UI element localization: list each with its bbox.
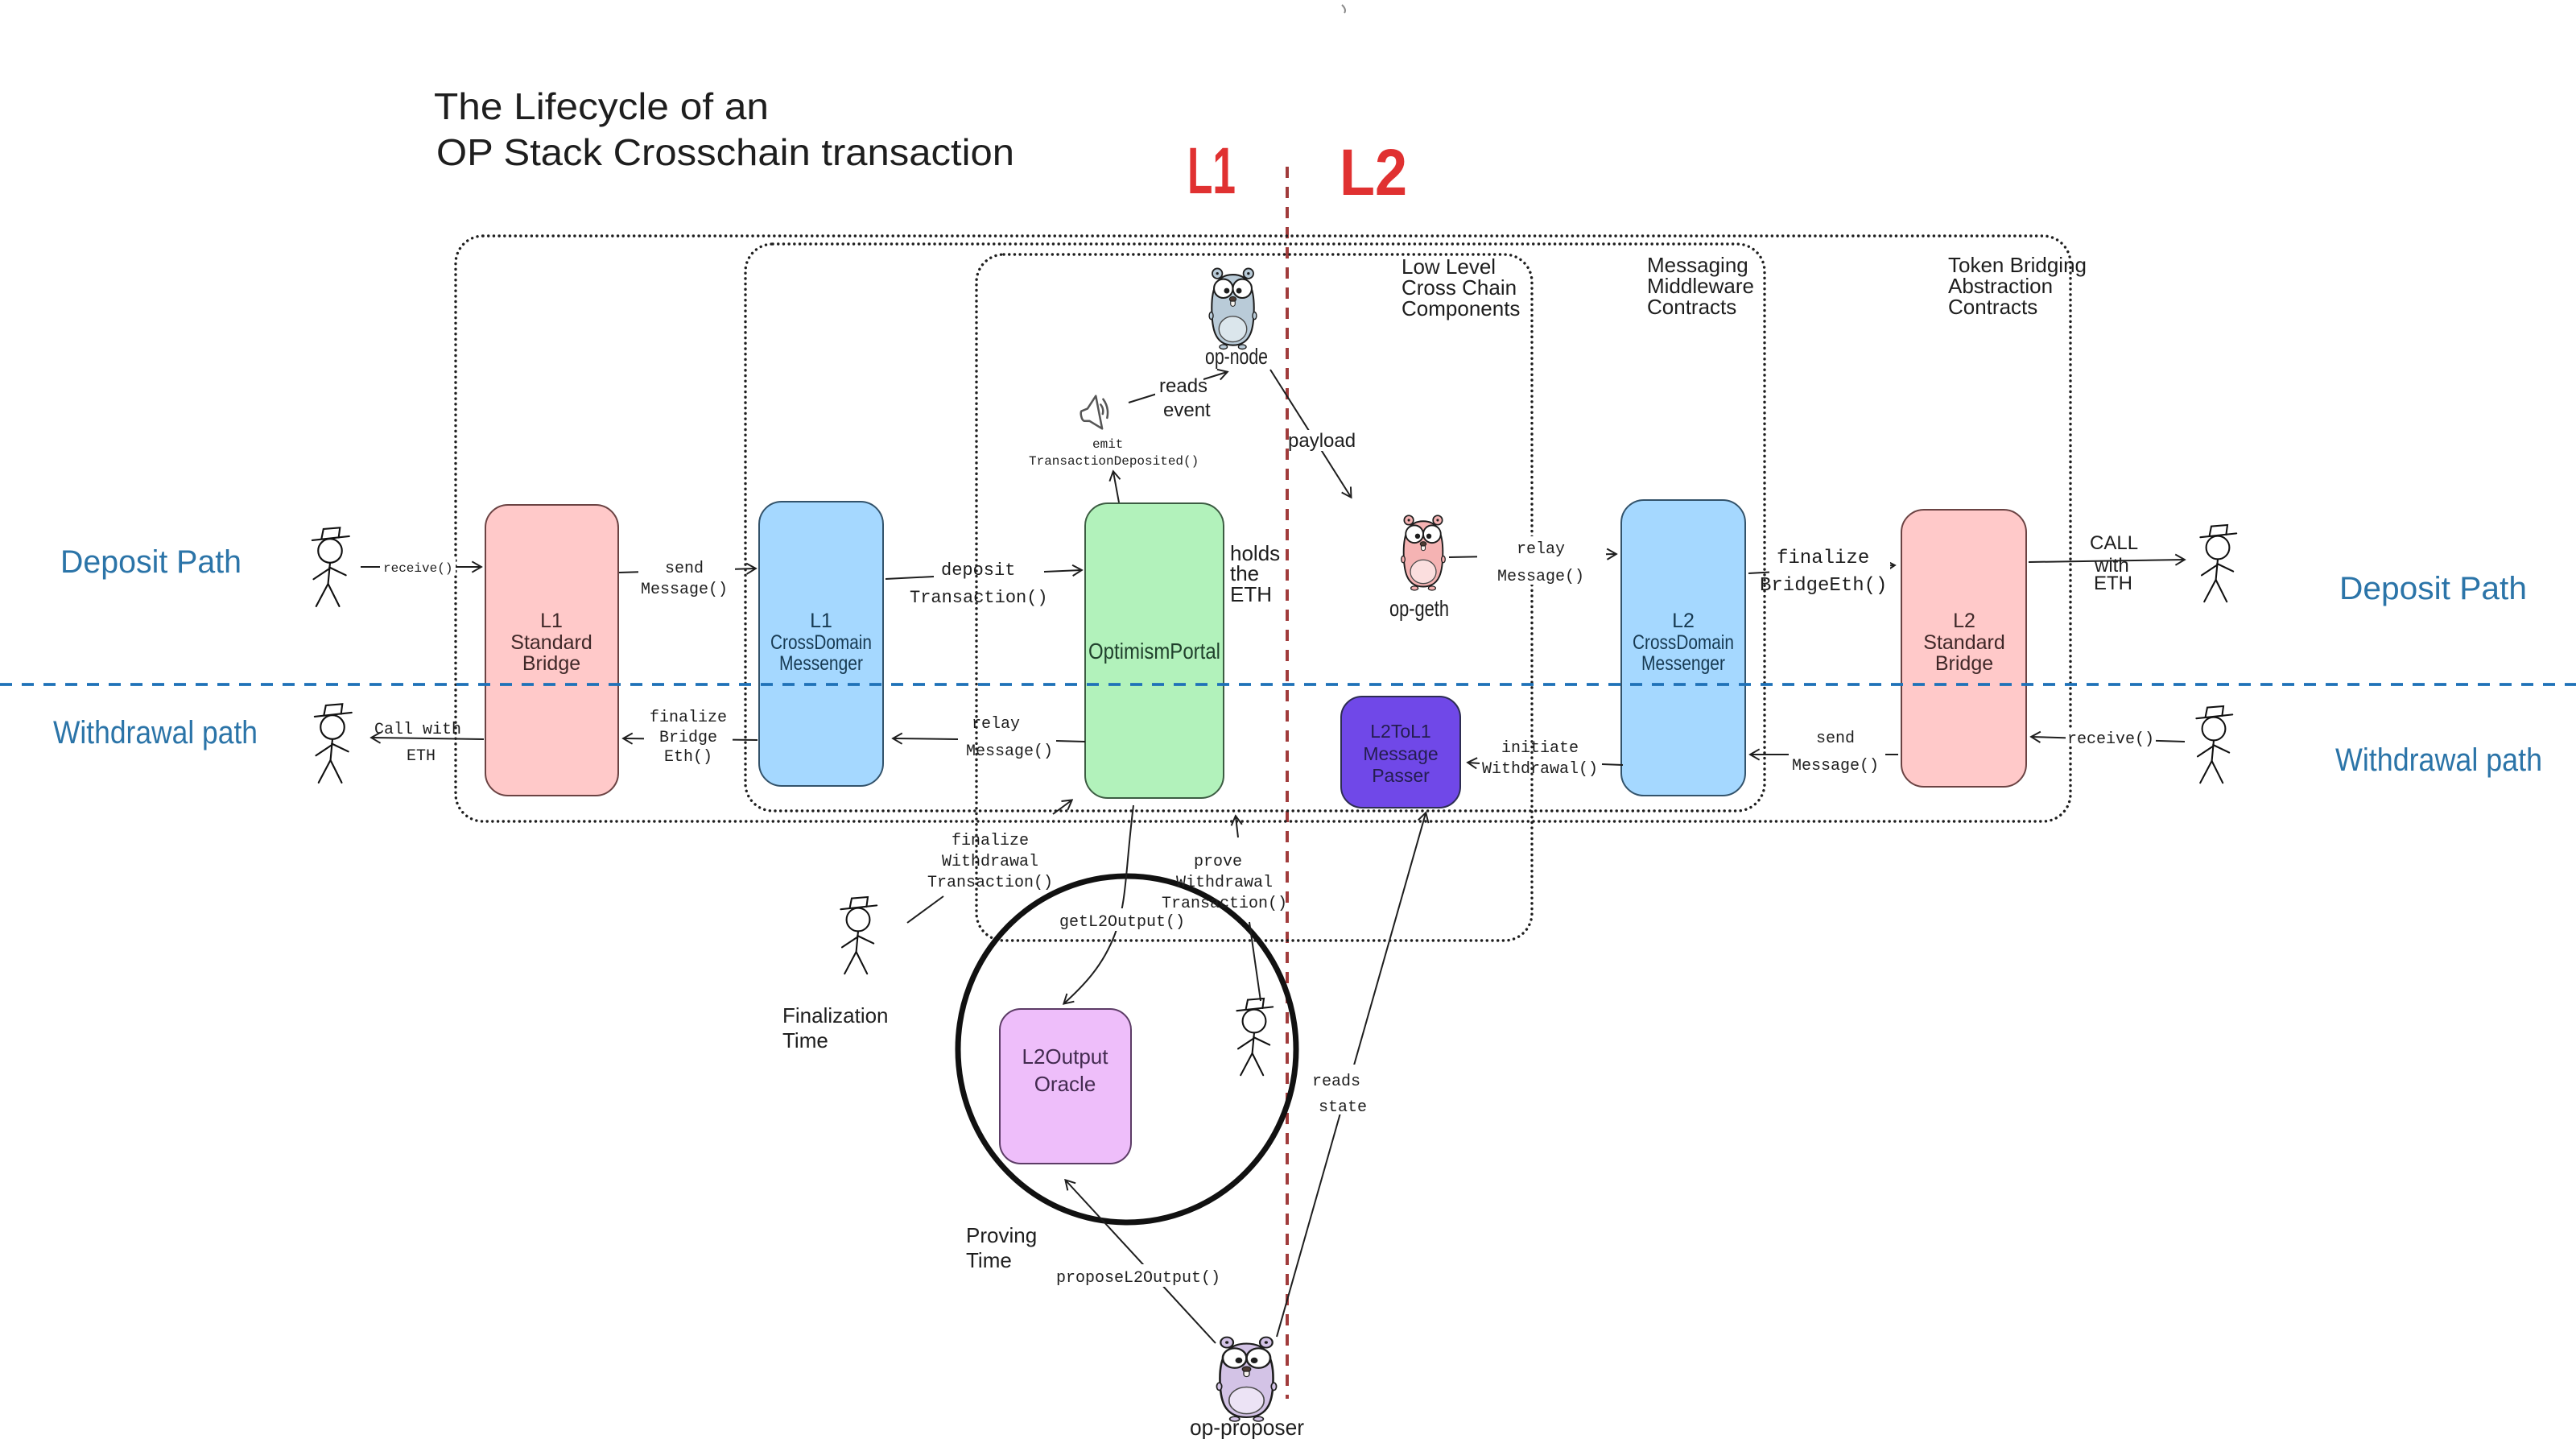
svg-text:Withdrawal: Withdrawal — [1176, 874, 1273, 892]
svg-text:Time: Time — [782, 1028, 828, 1052]
svg-text:CrossDomain: CrossDomain — [1633, 631, 1734, 654]
svg-text:Oracle: Oracle — [1034, 1072, 1096, 1096]
svg-text:ETH: ETH — [1230, 582, 1272, 606]
svg-text:Time: Time — [966, 1248, 1012, 1272]
svg-text:ETH: ETH — [407, 747, 436, 766]
svg-text:L2ToL1: L2ToL1 — [1370, 721, 1430, 742]
svg-text:Contracts: Contracts — [1647, 295, 1736, 319]
svg-text:L1: L1 — [540, 610, 563, 632]
svg-text:CrossDomain: CrossDomain — [770, 631, 872, 654]
svg-text:Message(): Message() — [966, 742, 1053, 761]
svg-text:relay: relay — [1517, 540, 1565, 559]
svg-text:The Lifecycle of an: The Lifecycle of an — [434, 85, 769, 127]
svg-text:Withdrawal path: Withdrawal path — [2335, 742, 2542, 778]
svg-text:Message: Message — [1363, 743, 1438, 764]
svg-text:Bridge: Bridge — [522, 652, 580, 675]
svg-text:Components: Components — [1402, 296, 1520, 320]
svg-text:Withdrawal(): Withdrawal() — [1482, 760, 1598, 779]
svg-text:Deposit Path: Deposit Path — [2339, 571, 2527, 606]
svg-text:proposeL2Output(): proposeL2Output() — [1056, 1269, 1220, 1288]
svg-text:emit: emit — [1092, 437, 1123, 452]
svg-text:state: state — [1319, 1098, 1367, 1117]
svg-text:L1: L1 — [810, 610, 832, 632]
svg-text:Bridge: Bridge — [659, 729, 717, 747]
svg-text:receive(): receive() — [383, 561, 452, 576]
svg-text:payload: payload — [1288, 430, 1356, 452]
svg-text:send: send — [665, 560, 704, 578]
svg-text:L2Output: L2Output — [1022, 1044, 1109, 1069]
svg-text:Passer: Passer — [1372, 765, 1430, 786]
svg-text:deposit: deposit — [941, 560, 1015, 581]
svg-text:Message(): Message() — [1497, 568, 1584, 586]
svg-text:OP Stack Crosschain transactio: OP Stack Crosschain transaction — [436, 131, 1014, 173]
svg-text:Deposit Path: Deposit Path — [60, 544, 242, 580]
svg-text:finalize: finalize — [1777, 548, 1869, 569]
svg-text:reads: reads — [1159, 375, 1207, 397]
svg-text:Standard: Standard — [510, 631, 592, 654]
svg-text:TransactionDeposited(): TransactionDeposited() — [1029, 454, 1199, 469]
svg-text:Messenger: Messenger — [779, 652, 863, 675]
svg-text:Proving: Proving — [966, 1223, 1037, 1247]
svg-text:op-node: op-node — [1205, 344, 1268, 369]
svg-text:reads: reads — [1312, 1073, 1360, 1091]
svg-text:L1: L1 — [1187, 134, 1236, 208]
svg-text:ETH: ETH — [2094, 573, 2132, 594]
svg-text:Messenger: Messenger — [1641, 652, 1725, 675]
svg-text:Transaction(): Transaction() — [910, 588, 1048, 608]
svg-text:Standard: Standard — [1923, 631, 2004, 654]
svg-text:L2: L2 — [1672, 610, 1695, 632]
svg-text:BridgeEth(): BridgeEth() — [1760, 575, 1887, 597]
svg-text:Transaction(): Transaction() — [927, 874, 1053, 892]
svg-text:prove: prove — [1194, 853, 1242, 871]
svg-text:send: send — [1816, 730, 1855, 748]
svg-text:L2: L2 — [1340, 136, 1407, 209]
svg-text:initiate: initiate — [1501, 739, 1579, 758]
svg-text:Withdrawal: Withdrawal — [942, 853, 1038, 871]
svg-text:Call with: Call with — [374, 721, 461, 739]
svg-text:Withdrawal path: Withdrawal path — [53, 715, 258, 751]
svg-text:Eth(): Eth() — [664, 748, 712, 767]
svg-text:op-proposer: op-proposer — [1190, 1415, 1304, 1439]
svg-text:getL2Output(): getL2Output() — [1059, 913, 1185, 932]
svg-text:relay: relay — [972, 715, 1020, 734]
svg-text:event: event — [1163, 399, 1211, 421]
svg-text:Bridge: Bridge — [1935, 652, 1993, 675]
svg-text:Finalization: Finalization — [782, 1003, 889, 1028]
svg-text:finalize: finalize — [952, 832, 1029, 850]
svg-text:receive(): receive() — [2067, 730, 2154, 749]
svg-text:Message(): Message() — [1792, 757, 1879, 775]
svg-text:Contracts: Contracts — [1948, 295, 2037, 319]
svg-text:L2: L2 — [1953, 610, 1975, 632]
svg-text:Message(): Message() — [641, 581, 728, 599]
svg-text:CALL: CALL — [2090, 532, 2138, 554]
svg-text:OptimismPortal: OptimismPortal — [1088, 639, 1220, 664]
svg-text:finalize: finalize — [650, 709, 727, 727]
svg-text:op-geth: op-geth — [1389, 596, 1449, 621]
